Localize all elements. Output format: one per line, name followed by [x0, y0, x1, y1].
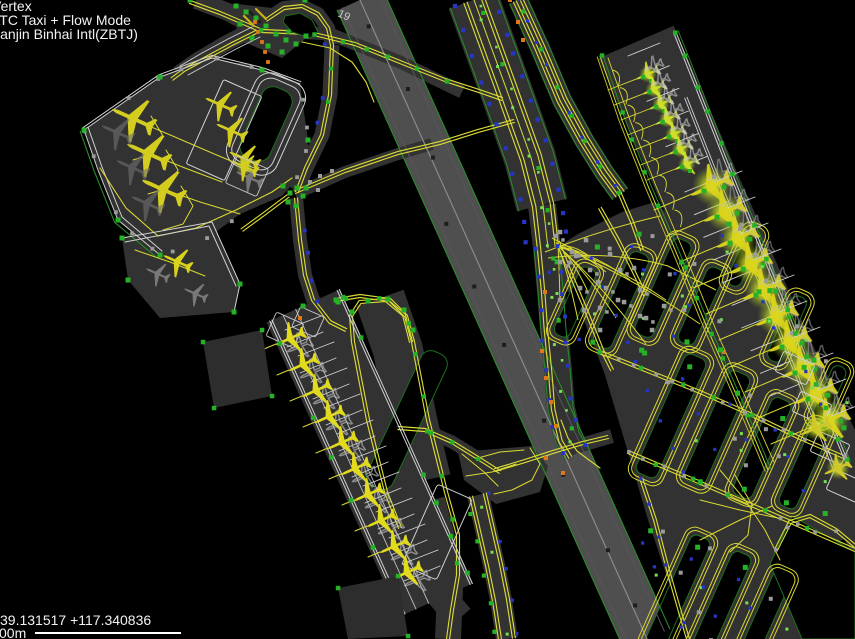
- svg-text:00m: 00m: [0, 625, 26, 639]
- svg-text:Tianjin Binhai Intl(ZBTJ): Tianjin Binhai Intl(ZBTJ): [0, 26, 138, 42]
